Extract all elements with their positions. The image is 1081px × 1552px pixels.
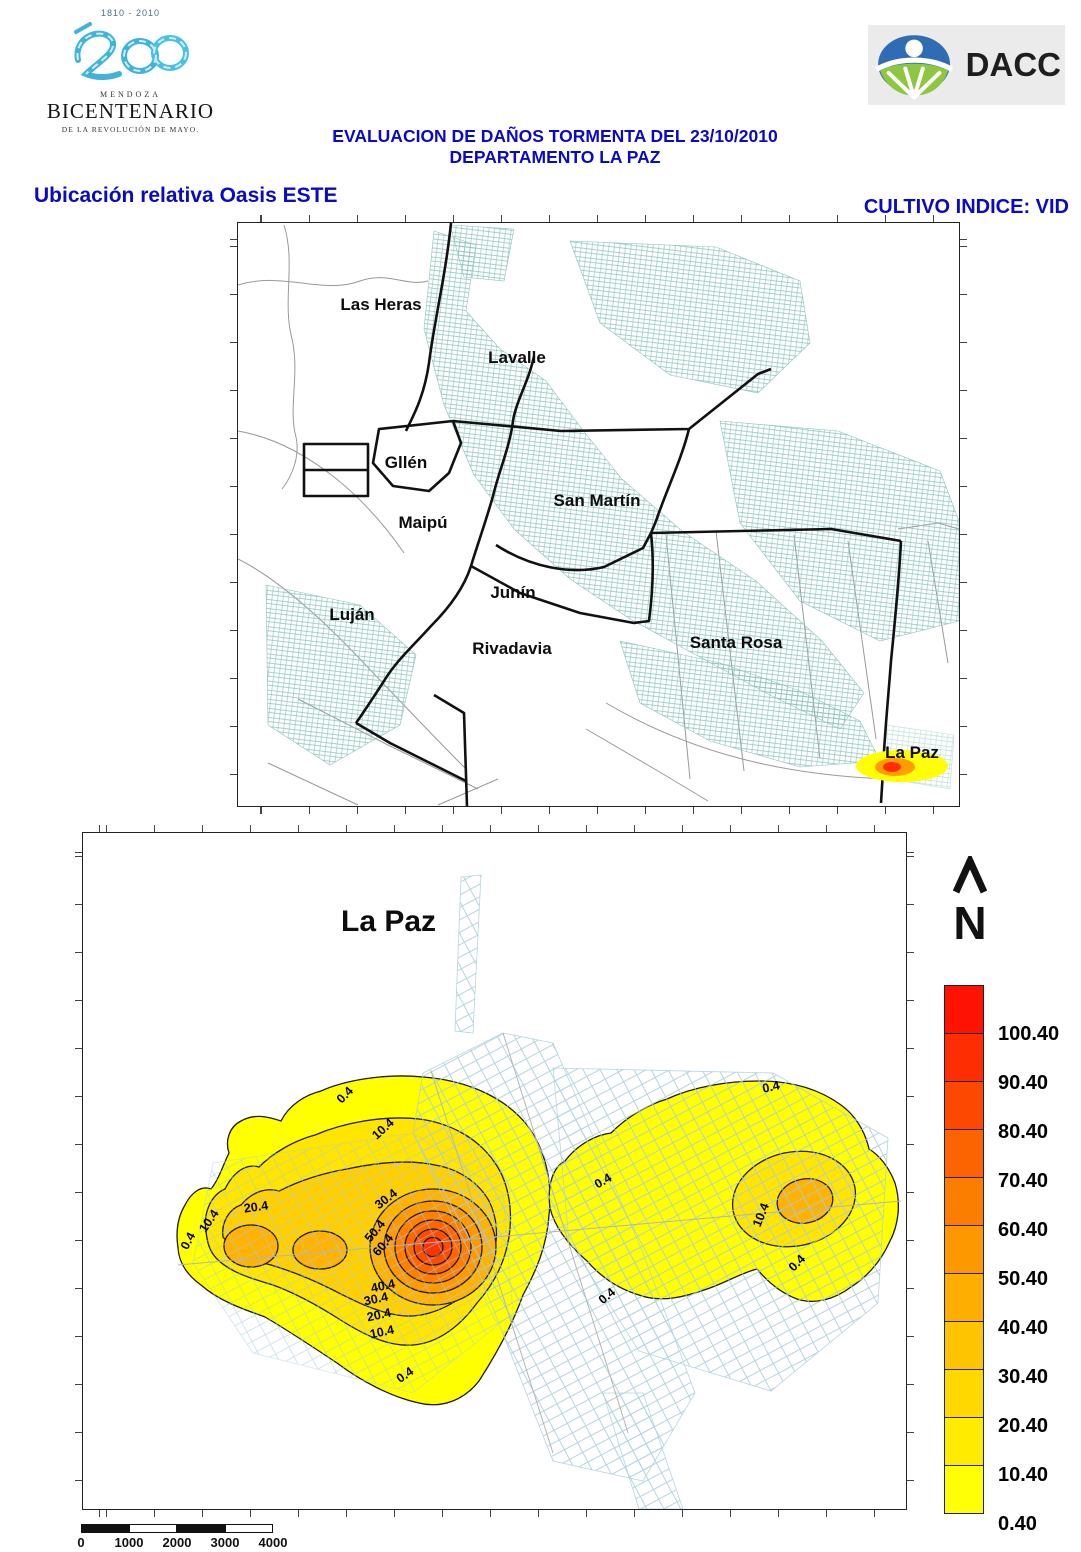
department-label: La Paz <box>885 743 939 763</box>
scale-bar-segment <box>225 1524 273 1533</box>
department-label: Junín <box>490 583 535 603</box>
scale-bar-label: 2000 <box>163 1535 192 1550</box>
locator-map-ticks-top <box>238 215 959 222</box>
legend-label: 20.40 <box>998 1415 1048 1438</box>
legend-swatch <box>944 1273 984 1322</box>
contour-label: 0.4 <box>761 1078 781 1095</box>
locator-map-ticks-right <box>960 223 967 806</box>
locator-map-ticks-left <box>230 223 237 806</box>
department-label: Rivadavia <box>472 639 551 659</box>
left-subtitle: Ubicación relativa Oasis ESTE <box>34 184 337 208</box>
scale-bar-label: 0 <box>77 1535 84 1550</box>
contour-label: 0.4 <box>334 1084 356 1106</box>
scale-bar-label: 4000 <box>259 1535 288 1550</box>
bicentenario-ribbon-icon <box>56 18 206 84</box>
contour-label: 0.4 <box>178 1230 199 1252</box>
contour-label: 10.4 <box>369 1116 396 1143</box>
page-title: EVALUACION DE DAÑOS TORMENTA DEL 23/10/2… <box>245 126 865 168</box>
contour-map-ticks-left <box>75 833 82 1509</box>
legend-label: 50.40 <box>998 1268 1048 1291</box>
contour-label: 30.4 <box>372 1186 400 1212</box>
contour-label: 0.4 <box>596 1285 618 1307</box>
dacc-emblem-icon <box>872 27 960 103</box>
department-label: Santa Rosa <box>690 633 783 653</box>
scale-bar-segment <box>81 1524 129 1533</box>
legend-swatch <box>944 1225 984 1274</box>
damage-contour-map: La Paz 0.410.420.40.410.430.450.460.440.… <box>82 832 907 1510</box>
lower-map-labels: 0.410.420.40.410.430.450.460.440.430.420… <box>83 833 906 1509</box>
scale-bar-segment <box>177 1524 225 1533</box>
contour-map-ticks-bottom <box>83 1510 906 1517</box>
legend-label: 30.40 <box>998 1366 1048 1389</box>
scale-bar-segment <box>129 1524 177 1533</box>
map-sheet: 1810 - 2010 MENDOZA BICENTENARIO DE LA R… <box>0 0 1081 1552</box>
contour-label: 10.4 <box>369 1323 396 1342</box>
contour-label: 0.4 <box>786 1252 808 1274</box>
legend-swatch <box>944 1081 984 1130</box>
legend-label: 60.40 <box>998 1219 1048 1242</box>
locator-map: Las HerasLavalleGllénMaipúSan MartínJuní… <box>237 222 960 807</box>
dacc-logo: DACC <box>868 25 1065 105</box>
department-label: Gllén <box>385 453 428 473</box>
legend-swatch <box>944 1321 984 1370</box>
legend-swatch <box>944 1417 984 1466</box>
contour-label: 10.4 <box>750 1201 772 1229</box>
scale-bar-label: 1000 <box>115 1535 144 1550</box>
legend-label: 90.40 <box>998 1072 1048 1095</box>
bicentenario-name: BICENTENARIO <box>38 99 223 124</box>
title-line-1: EVALUACION DE DAÑOS TORMENTA DEL 23/10/2… <box>245 126 865 147</box>
bicentenario-region: MENDOZA <box>38 90 223 99</box>
right-subtitle: CULTIVO INDICE: VID <box>864 196 1069 219</box>
legend-swatch <box>944 1129 984 1178</box>
legend-label: 100.40 <box>998 1023 1059 1046</box>
contour-label: 20.4 <box>366 1306 393 1325</box>
contour-label: 10.4 <box>196 1207 221 1235</box>
contour-map-ticks-right <box>907 833 914 1509</box>
north-label: N <box>938 901 1002 945</box>
north-arrow-icon <box>946 856 994 896</box>
legend-label: 70.40 <box>998 1170 1048 1193</box>
north-arrow: N <box>938 856 1002 945</box>
legend-colorbar: 100.4090.4080.4070.4060.4050.4040.4030.4… <box>944 986 984 1514</box>
bicentenario-years: 1810 - 2010 <box>38 8 223 18</box>
department-label: Las Heras <box>340 295 421 315</box>
legend-label: 80.40 <box>998 1121 1048 1144</box>
bicentenario-logo: 1810 - 2010 MENDOZA BICENTENARIO DE LA R… <box>38 6 223 164</box>
department-label: San Martín <box>554 491 641 511</box>
locator-map-ticks-bottom <box>238 807 959 814</box>
legend-swatch <box>944 1465 984 1514</box>
upper-map-labels: Las HerasLavalleGllénMaipúSan MartínJuní… <box>238 223 959 806</box>
contour-label: 0.4 <box>592 1171 614 1192</box>
department-label: Lavalle <box>488 348 546 368</box>
legend-swatch <box>944 1033 984 1082</box>
contour-label: 20.4 <box>243 1198 269 1215</box>
department-label: Maipú <box>398 513 447 533</box>
legend-swatch <box>944 1177 984 1226</box>
title-line-2: DEPARTAMENTO LA PAZ <box>245 147 865 168</box>
scale-bar-label: 3000 <box>211 1535 240 1550</box>
contour-map-ticks-top <box>83 825 906 832</box>
legend-swatch <box>944 985 984 1034</box>
legend-swatch <box>944 1369 984 1418</box>
scale-bar: 01000200030004000 <box>81 1524 301 1552</box>
legend-label: 0.40 <box>998 1513 1037 1536</box>
department-label: Luján <box>329 605 374 625</box>
bicentenario-subtitle: DE LA REVOLUCIÓN DE MAYO. <box>38 125 223 134</box>
legend-label: 40.40 <box>998 1317 1048 1340</box>
contour-label: 0.4 <box>394 1364 416 1385</box>
dacc-label: DACC <box>966 46 1061 84</box>
legend-label: 10.40 <box>998 1464 1048 1487</box>
